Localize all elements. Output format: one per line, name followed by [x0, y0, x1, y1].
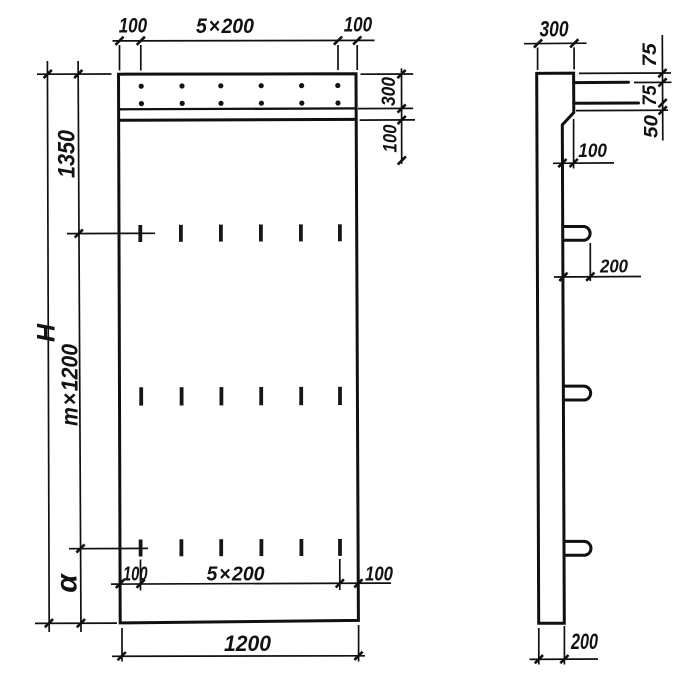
- svg-text:200: 200: [599, 257, 628, 277]
- svg-text:100: 100: [578, 141, 607, 162]
- svg-text:75: 75: [640, 85, 661, 106]
- svg-text:100: 100: [119, 15, 148, 38]
- svg-text:100: 100: [365, 564, 393, 586]
- svg-text:1200: 1200: [224, 631, 272, 656]
- svg-text:300: 300: [540, 17, 570, 42]
- svg-text:5 × 200: 5 × 200: [196, 15, 254, 38]
- svg-text:m × 1200: m × 1200: [57, 344, 83, 426]
- svg-text:300: 300: [379, 77, 400, 106]
- svg-text:100: 100: [344, 14, 373, 37]
- svg-text:100: 100: [123, 564, 148, 586]
- svg-text:75: 75: [640, 43, 661, 67]
- svg-text:1350: 1350: [54, 129, 81, 178]
- svg-text:5 × 200: 5 × 200: [207, 564, 265, 586]
- svg-text:α: α: [51, 573, 84, 593]
- svg-text:100: 100: [381, 124, 402, 152]
- svg-text:50: 50: [642, 115, 663, 138]
- svg-text:H: H: [33, 323, 61, 342]
- svg-text:200: 200: [570, 629, 598, 654]
